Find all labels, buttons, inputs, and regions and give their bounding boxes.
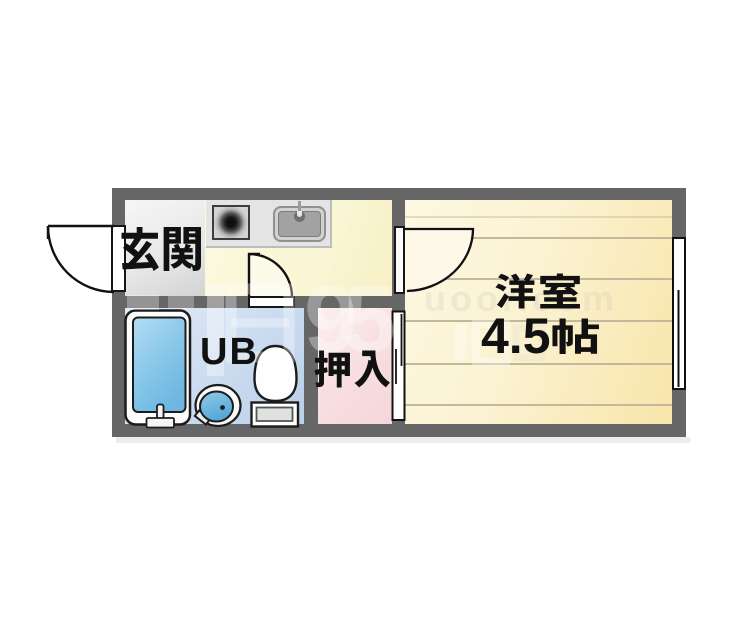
svg-text:95: 95: [304, 266, 396, 373]
